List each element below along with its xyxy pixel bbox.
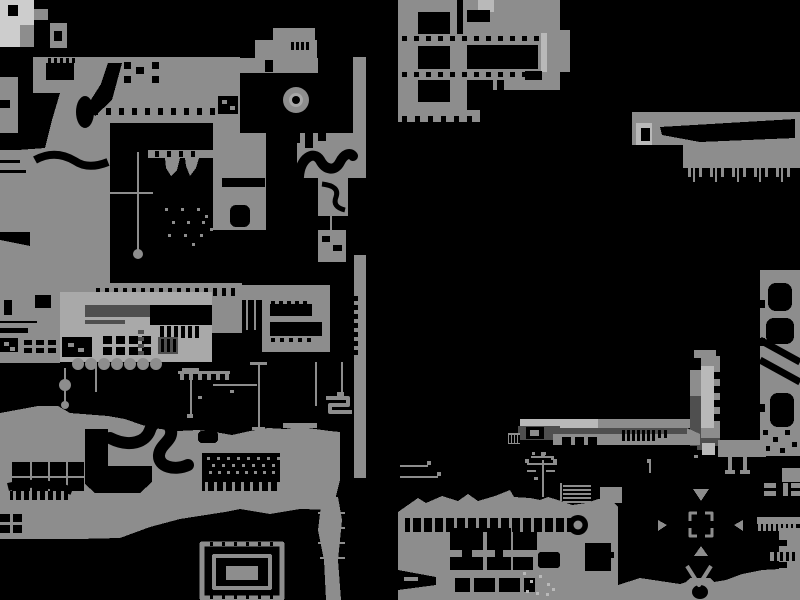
map-shape: [523, 572, 526, 575]
map-shape: [292, 96, 300, 104]
map-shape: [85, 305, 150, 317]
map-shape: [768, 524, 771, 531]
map-shape: [165, 208, 168, 211]
map-shape: [36, 348, 44, 353]
map-shape: [715, 168, 717, 182]
map-shape: [180, 374, 184, 380]
map-shape: [273, 28, 315, 41]
map-shape: [173, 339, 176, 352]
map-shape: [410, 518, 413, 532]
map-shape: [210, 108, 215, 115]
map-shape: [181, 326, 185, 338]
map-shape: [292, 133, 300, 143]
map-shape: [258, 362, 260, 430]
map-shape: [277, 482, 280, 491]
map-shape: [531, 456, 554, 458]
map-shape: [230, 390, 234, 393]
reticle-icon: [690, 528, 697, 536]
map-shape: [72, 358, 84, 370]
map-shape: [588, 437, 597, 445]
map-shape: [85, 320, 125, 324]
map-shape: [518, 435, 520, 443]
map-shape: [24, 348, 32, 353]
map-shape: [262, 464, 265, 467]
map-shape: [187, 221, 190, 224]
map-shape: [664, 430, 667, 438]
map-shape: [138, 337, 144, 341]
map-shape: [0, 525, 10, 533]
arrow-down-icon: [693, 489, 709, 501]
map-shape: [210, 595, 213, 599]
map-shape: [737, 168, 739, 182]
map-shape: [780, 448, 785, 453]
map-shape: [124, 62, 131, 69]
map-shape: [513, 557, 533, 570]
map-shape: [0, 514, 10, 522]
map-shape: [20, 25, 34, 47]
map-shape: [216, 374, 220, 380]
map-shape: [35, 295, 51, 308]
map-shape: [714, 386, 720, 393]
map-shape: [714, 372, 720, 379]
map-shape: [547, 583, 550, 586]
map-shape: [213, 288, 217, 296]
map-shape: [137, 152, 139, 250]
map-shape: [782, 468, 800, 482]
map-shape: [95, 362, 97, 392]
map-shape: [0, 100, 10, 108]
map-shape: [467, 90, 480, 110]
map-shape: [467, 45, 538, 69]
map-shape: [236, 471, 239, 474]
map-shape: [234, 542, 237, 546]
map-shape: [773, 437, 778, 442]
map-shape: [34, 9, 48, 20]
map-shape: [743, 457, 747, 470]
map-shape: [295, 428, 302, 445]
map-shape: [701, 366, 714, 428]
map-shape: [303, 301, 307, 305]
map-shape: [230, 205, 250, 227]
map-shape: [785, 123, 788, 133]
map-shape: [450, 72, 455, 77]
map-shape: [191, 151, 195, 157]
map-shape: [414, 72, 419, 77]
map-shape: [779, 540, 787, 546]
map-shape: [222, 288, 226, 296]
map-shape: [210, 228, 213, 231]
map-shape: [54, 58, 57, 63]
map-shape: [21, 491, 24, 500]
map-shape: [642, 430, 645, 441]
map-shape: [161, 339, 164, 352]
map-shape: [487, 557, 511, 570]
map-shape: [223, 482, 226, 491]
map-shape: [560, 483, 562, 501]
map-shape: [0, 170, 26, 173]
map-shape: [793, 524, 796, 531]
map-shape: [754, 168, 757, 177]
map-shape: [543, 452, 546, 455]
map-shape: [222, 100, 227, 104]
map-shape: [600, 487, 622, 503]
map-shape: [214, 482, 217, 491]
map-shape: [320, 527, 345, 529]
map-shape: [495, 550, 503, 557]
map-shape: [694, 350, 716, 358]
map-shape: [542, 460, 544, 497]
map-shape: [780, 552, 783, 561]
map-shape: [29, 491, 32, 500]
map-shape: [764, 491, 776, 496]
map-shape: [137, 358, 149, 370]
map-shape: [467, 80, 493, 90]
map-shape: [470, 578, 474, 592]
map-shape: [242, 464, 245, 467]
map-shape: [307, 338, 311, 342]
map-shape: [4, 342, 9, 346]
map-shape: [520, 518, 523, 532]
map-shape: [318, 512, 345, 514]
map-shape: [152, 76, 159, 83]
map-shape: [562, 437, 571, 445]
map-shape: [530, 430, 539, 436]
map-shape: [497, 80, 504, 90]
map-shape: [198, 396, 202, 399]
map-shape: [487, 528, 511, 550]
map-shape: [263, 471, 266, 474]
map-shape: [763, 524, 766, 531]
map-shape: [766, 318, 794, 344]
map-shape: [641, 128, 650, 141]
map-shape: [246, 595, 249, 599]
map-shape: [402, 116, 407, 122]
map-shape: [277, 457, 280, 460]
map-shape: [427, 461, 431, 465]
map-shape: [237, 457, 240, 460]
map-shape: [226, 566, 258, 580]
map-shape: [474, 36, 479, 41]
map-shape: [598, 419, 690, 428]
map-shape: [785, 430, 790, 435]
map-shape: [48, 340, 56, 345]
terrain-left-mass: [18, 93, 110, 290]
map-shape: [773, 524, 776, 531]
map-shape: [152, 62, 159, 69]
map-shape: [103, 336, 112, 344]
map-shape: [168, 234, 171, 237]
map-shape: [652, 430, 655, 441]
map-shape: [259, 482, 262, 491]
map-shape: [575, 437, 584, 445]
map-shape: [761, 123, 764, 133]
map-shape: [414, 36, 419, 41]
map-shape: [158, 108, 163, 115]
map-shape: [138, 344, 144, 348]
map-shape: [525, 459, 529, 463]
map-shape: [647, 459, 651, 463]
map-shape: [207, 457, 210, 460]
terrain-column: [354, 255, 366, 478]
map-shape: [467, 10, 490, 22]
map-shape: [563, 493, 591, 495]
map-shape: [54, 31, 62, 41]
map-shape: [421, 518, 424, 532]
map-shape: [418, 46, 450, 69]
map-shape: [534, 477, 538, 480]
map-shape: [774, 552, 777, 561]
map-shape: [725, 470, 735, 474]
map-shape: [240, 58, 318, 73]
map-shape: [305, 133, 313, 148]
map-shape: [296, 42, 299, 50]
map-shape: [254, 290, 256, 330]
map-shape: [272, 464, 275, 467]
map-shape: [432, 518, 435, 532]
map-shape: [270, 542, 273, 546]
map-shape: [184, 234, 187, 237]
map-shape: [155, 151, 159, 157]
map-shape: [197, 108, 202, 115]
map-shape: [78, 348, 84, 352]
map-shape: [133, 249, 143, 259]
map-shape: [232, 482, 235, 491]
map-shape: [783, 524, 786, 531]
map-shape: [103, 347, 112, 355]
map-shape: [93, 108, 98, 115]
map-shape: [658, 430, 661, 438]
map-shape: [237, 192, 239, 205]
map-shape: [791, 483, 800, 488]
map-shape: [498, 36, 503, 41]
map-shape: [217, 457, 220, 460]
map-shape: [45, 491, 48, 500]
map-shape: [564, 518, 567, 532]
map-shape: [254, 471, 257, 474]
map-shape: [291, 42, 294, 50]
map-shape: [532, 452, 535, 455]
map-shape: [232, 464, 235, 467]
map-shape: [760, 338, 765, 346]
map-shape: [246, 542, 249, 546]
map-shape: [326, 398, 352, 412]
screenshot-root: [0, 0, 800, 600]
map-shape: [111, 358, 123, 370]
map-shape: [213, 384, 257, 386]
map-shape: [234, 595, 237, 599]
map-shape: [776, 168, 779, 177]
arrow-up-icon: [694, 546, 708, 556]
map-shape: [428, 116, 433, 122]
map-shape: [138, 351, 144, 355]
map-shape: [710, 168, 713, 177]
map-shape: [247, 457, 250, 460]
map-shape: [760, 404, 765, 412]
map-shape: [354, 305, 358, 310]
map-shape: [185, 158, 199, 176]
map-shape: [792, 552, 795, 561]
map-shape: [145, 108, 150, 115]
map-shape: [791, 491, 800, 496]
map-shape: [415, 116, 420, 122]
map-shape: [758, 524, 761, 531]
map-shape: [225, 374, 229, 380]
map-shape: [181, 208, 184, 211]
map-shape: [400, 465, 428, 467]
map-shape: [59, 379, 71, 391]
map-shape: [172, 221, 175, 224]
map-shape: [288, 445, 314, 451]
map-shape: [690, 356, 701, 370]
map-shape: [252, 464, 255, 467]
map-shape: [106, 108, 111, 115]
map-shape: [270, 304, 312, 316]
map-shape: [732, 168, 735, 177]
map-shape: [53, 491, 56, 500]
map-shape: [62, 337, 92, 357]
map-shape: [246, 290, 248, 330]
map-shape: [330, 216, 332, 230]
map-shape: [647, 430, 650, 441]
map-shape: [10, 347, 15, 351]
map-shape: [179, 151, 183, 157]
map-shape: [757, 517, 800, 524]
map-shape: [95, 192, 153, 194]
map-shape: [182, 368, 199, 371]
map-shape: [289, 338, 293, 342]
map-shape: [553, 518, 556, 532]
map-shape: [611, 552, 614, 558]
map-shape: [454, 116, 459, 122]
map-shape: [527, 470, 536, 472]
map-shape: [768, 283, 792, 311]
map-shape: [438, 36, 443, 41]
map-shape: [167, 151, 171, 157]
map-shape: [4, 300, 12, 315]
map-shape: [13, 491, 16, 500]
map-shape: [150, 305, 212, 325]
map-shape: [699, 168, 702, 177]
room: [46, 63, 74, 80]
map-shape: [760, 300, 765, 308]
map-shape: [250, 482, 253, 491]
map-shape: [227, 457, 230, 460]
map-shape: [426, 36, 431, 41]
map-shape: [272, 471, 275, 474]
map-shape: [779, 562, 787, 568]
map-shape: [462, 72, 467, 77]
map-shape: [443, 518, 446, 532]
map-shape: [217, 221, 220, 224]
map-shape: [418, 12, 450, 34]
map-shape: [192, 243, 195, 246]
map-shape: [510, 36, 515, 41]
map-shape: [627, 430, 630, 441]
reticle-icon: [705, 528, 712, 536]
map-shape: [763, 430, 768, 435]
map-shape: [124, 76, 131, 83]
map-shape: [552, 588, 555, 591]
map-shape: [753, 123, 756, 133]
map-shape: [467, 116, 472, 122]
map-shape: [129, 336, 138, 344]
map-shape: [68, 343, 74, 347]
map-shape: [354, 296, 358, 301]
map-shape: [98, 358, 110, 370]
map-shape: [270, 322, 322, 336]
map-shape: [198, 431, 218, 443]
map-shape: [202, 221, 205, 224]
map-shape: [400, 476, 438, 478]
map-shape: [0, 229, 54, 231]
map-shape: [48, 58, 51, 63]
map-shape: [265, 60, 273, 72]
map-shape: [110, 93, 165, 123]
map-shape: [462, 36, 467, 41]
map-shape: [150, 358, 162, 370]
map-shape: [279, 301, 283, 305]
map-shape: [556, 30, 570, 72]
map-shape: [694, 455, 698, 458]
map-shape: [116, 347, 125, 355]
map-shape: [649, 463, 651, 473]
map-shape: [209, 471, 212, 474]
map-shape: [72, 58, 75, 63]
map-shape: [24, 340, 32, 345]
map-shape: [786, 552, 789, 561]
map-shape: [187, 414, 193, 418]
map-shape: [788, 524, 791, 531]
map-shape: [563, 501, 591, 503]
map-shape: [197, 208, 200, 211]
map-shape: [702, 443, 715, 455]
map-shape: [222, 595, 225, 599]
map-shape: [280, 338, 284, 342]
map-shape: [515, 435, 517, 443]
map-shape: [222, 542, 225, 546]
map-shape: [769, 123, 772, 133]
map-shape: [426, 72, 431, 77]
map-shape: [525, 71, 542, 80]
map-shape: [287, 301, 291, 305]
map-shape: [777, 123, 780, 133]
map-shape: [546, 470, 555, 472]
map-shape: [510, 72, 515, 77]
map-shape: [306, 42, 309, 50]
map-shape: [320, 557, 345, 559]
map-shape: [0, 321, 37, 323]
map-shape: [257, 457, 260, 460]
map-shape: [270, 595, 273, 599]
map-shape: [258, 542, 261, 546]
map-shape: [498, 72, 503, 77]
map-shape: [171, 108, 176, 115]
map-shape: [538, 552, 560, 568]
map-shape: [271, 301, 275, 305]
map-shape: [188, 326, 192, 338]
map-shape: [474, 72, 479, 77]
map-shape: [167, 326, 171, 338]
map-shape: [218, 471, 221, 474]
map-shape: [450, 36, 455, 41]
map-shape: [530, 580, 533, 583]
map-shape: [606, 552, 609, 558]
map-shape: [189, 374, 193, 380]
map-shape: [637, 430, 640, 441]
map-shape: [227, 471, 230, 474]
map-shape: [527, 463, 557, 465]
map-shape: [268, 482, 271, 491]
